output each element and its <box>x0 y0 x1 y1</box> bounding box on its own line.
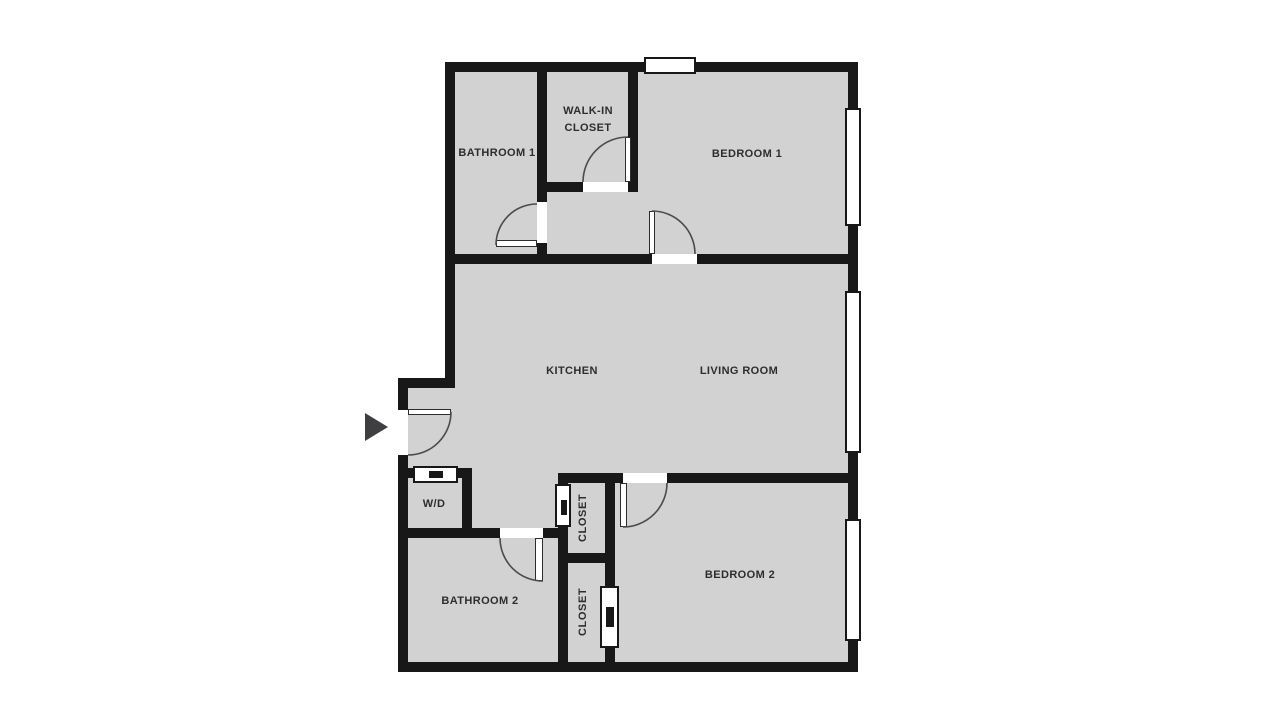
floor-plan-canvas: BATHROOM 1 WALK-IN CLOSET BEDROOM 1 KITC… <box>0 0 1280 720</box>
wall-living-room-south <box>558 473 858 483</box>
label-bathroom-1: BATHROOM 1 <box>427 145 567 161</box>
label-bedroom-1: BEDROOM 1 <box>677 146 817 162</box>
label-closet-lower: CLOSET <box>577 577 589 647</box>
door-leaf-bathroom1 <box>496 240 537 247</box>
entrance-arrow-icon <box>365 413 388 441</box>
window-right-bedroom2 <box>845 519 861 641</box>
door-leaf-bedroom2 <box>620 483 627 527</box>
label-bathroom-2: BATHROOM 2 <box>410 593 550 609</box>
door-leaf-bathroom2 <box>535 538 543 581</box>
label-wd: W/D <box>394 496 474 512</box>
wall-outer-bottom <box>398 662 858 672</box>
door-opening-bedroom1 <box>652 254 697 264</box>
door-leaf-entry <box>408 409 451 415</box>
window-top-bedroom1 <box>644 57 696 74</box>
label-closet-upper: CLOSET <box>577 483 589 553</box>
sliding-door-wd-stripe <box>429 471 443 478</box>
label-walk-in-closet: WALK-IN CLOSET <box>548 103 628 137</box>
door-opening-entry <box>398 410 408 455</box>
sliding-door-closet-upper-stripe <box>561 500 567 515</box>
wall-outer-left-upper <box>445 62 455 388</box>
door-opening-walkin-closet <box>583 182 628 192</box>
door-opening-bathroom1 <box>537 202 547 243</box>
label-living-room: LIVING ROOM <box>669 363 809 379</box>
door-opening-bathroom2 <box>500 528 543 538</box>
wall-closet-divider <box>558 553 615 563</box>
label-kitchen: KITCHEN <box>502 363 642 379</box>
door-leaf-walkin-closet <box>625 137 631 182</box>
window-right-living-room <box>845 291 861 453</box>
window-right-bedroom1 <box>845 108 861 226</box>
sliding-door-closet-lower-stripe <box>606 607 614 627</box>
door-leaf-bedroom1 <box>649 211 655 254</box>
door-opening-bedroom2 <box>623 473 667 483</box>
label-bedroom-2: BEDROOM 2 <box>670 567 810 583</box>
